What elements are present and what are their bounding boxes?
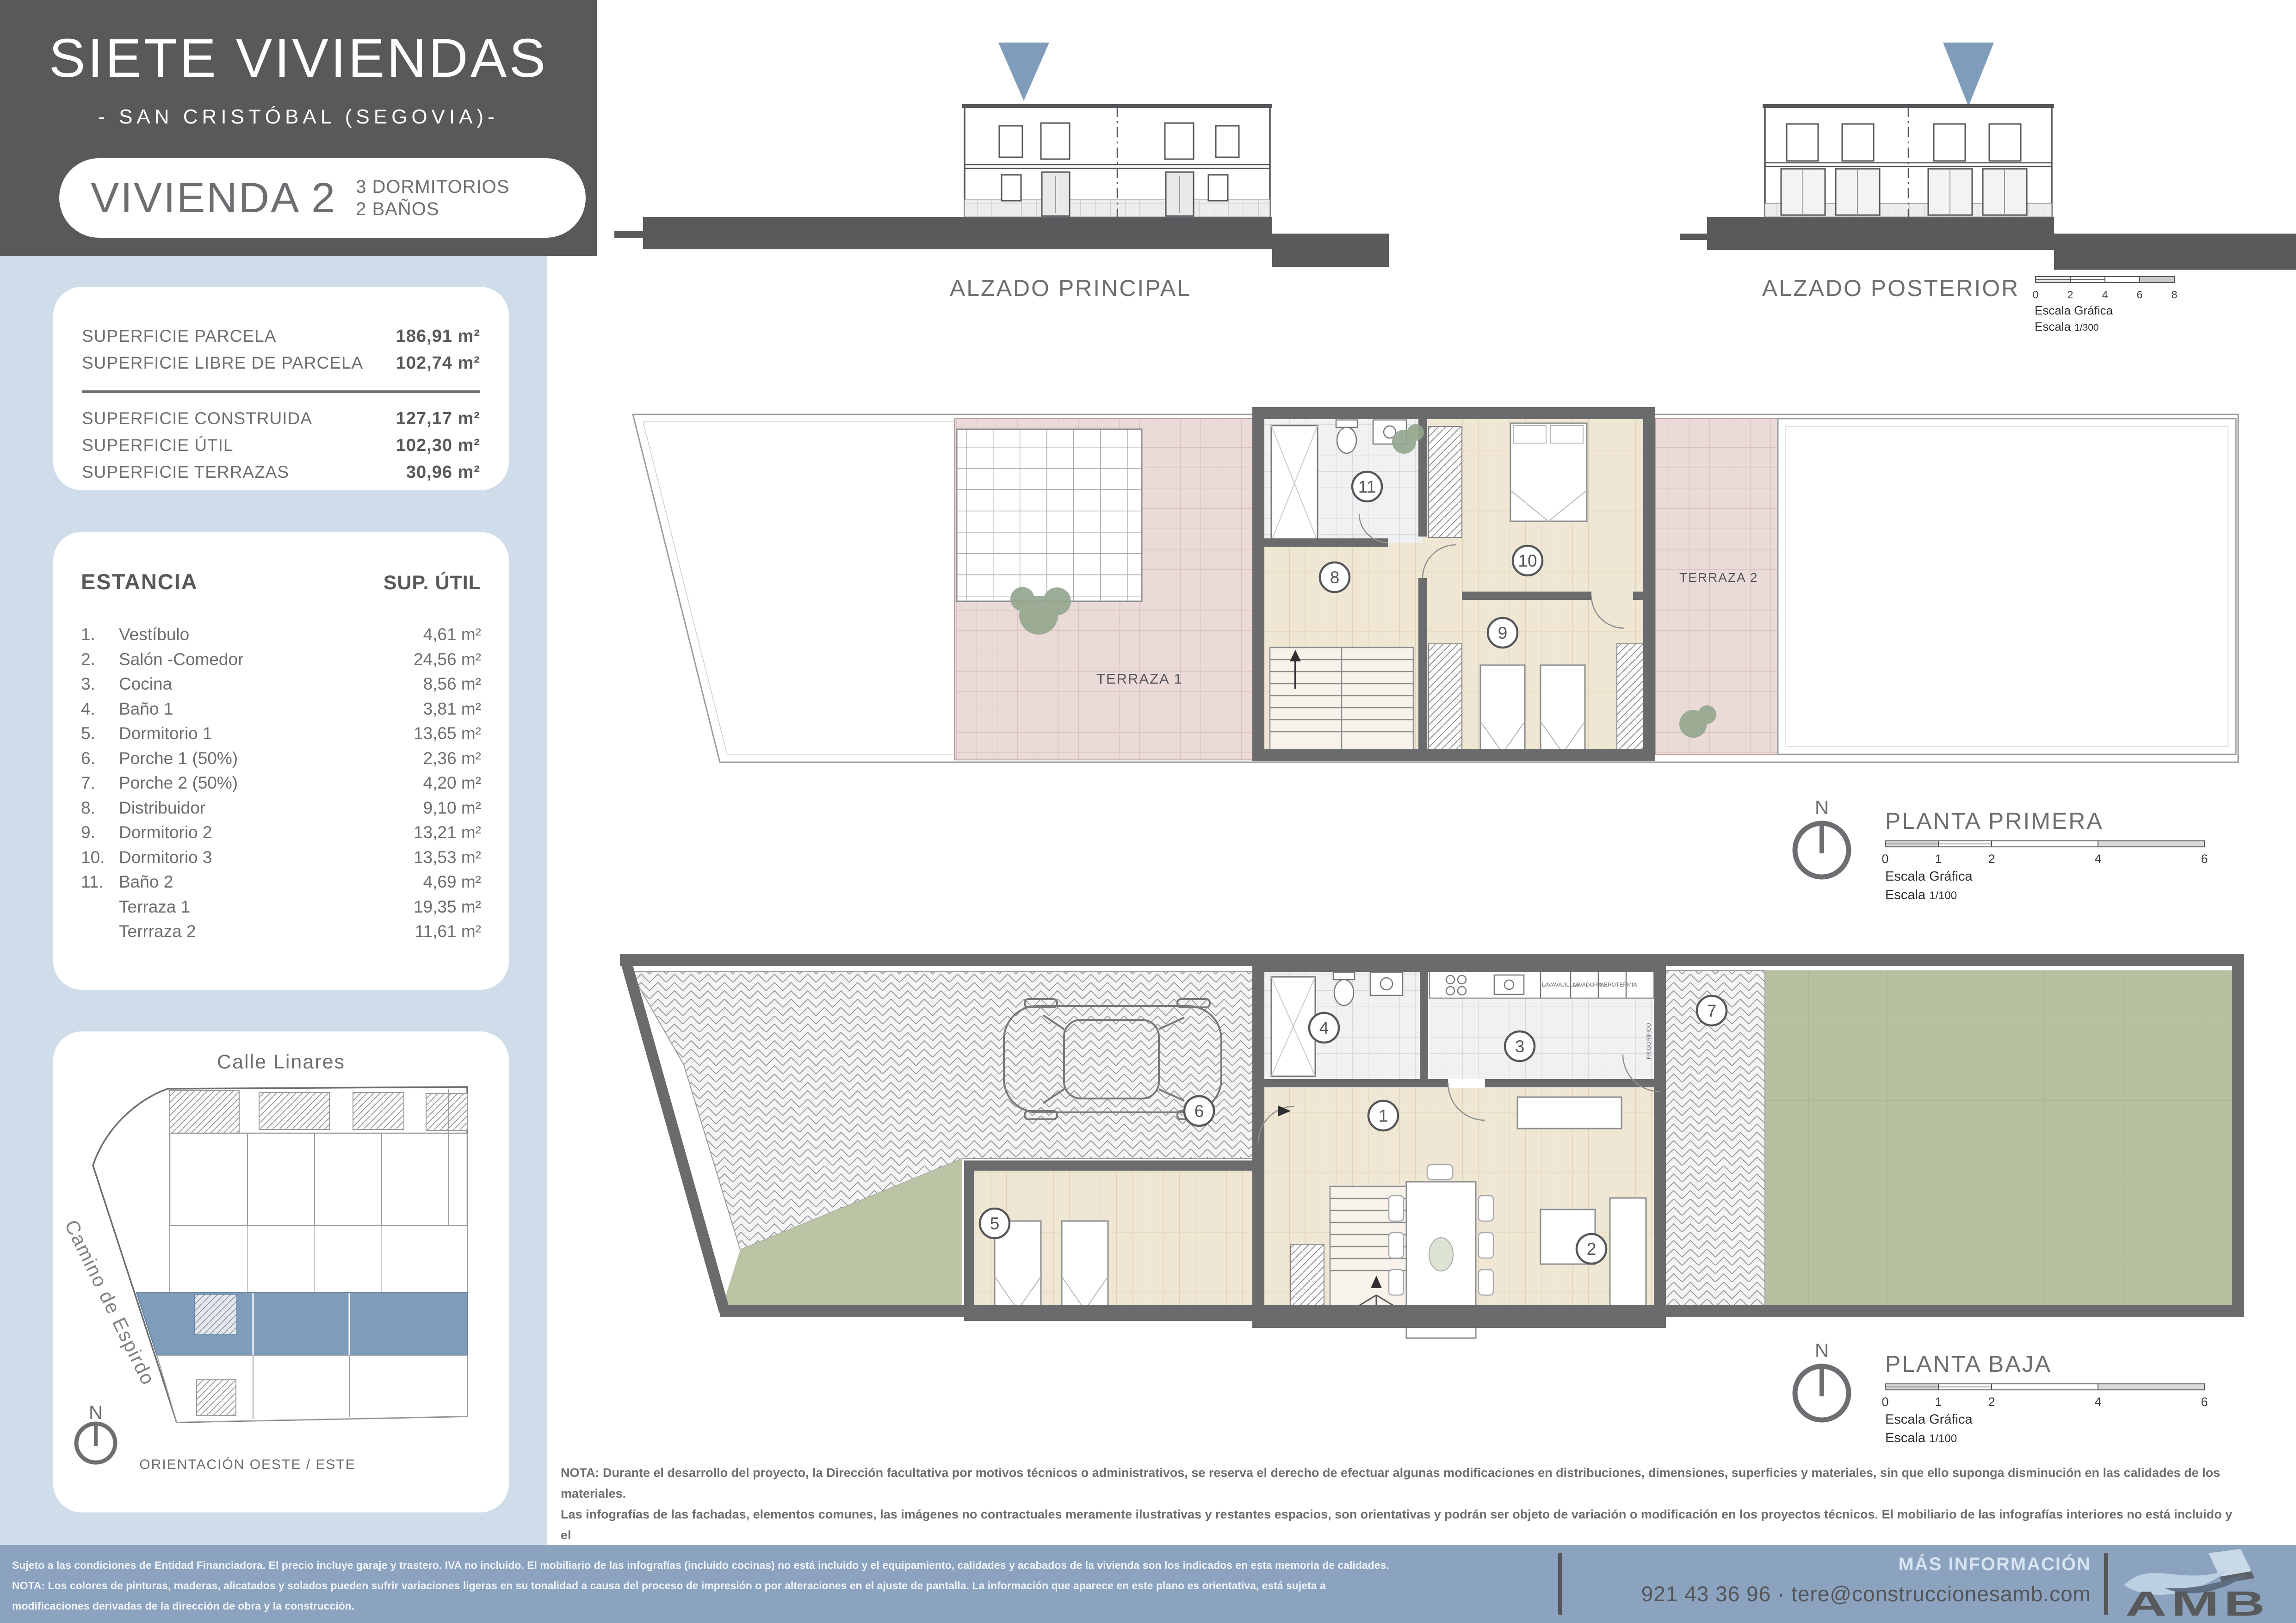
alzado-posterior-label: ALZADO POSTERIOR	[1762, 275, 2019, 301]
table-row: 4.Baño 13,81 m²	[81, 697, 481, 722]
svg-text:4: 4	[2102, 289, 2108, 301]
svg-text:1: 1	[1935, 1395, 1942, 1409]
planta-primera-caption: N PLANTA PRIMERA 0 1 2 4 6 Escala Gráfic…	[1795, 796, 2208, 902]
room-marker: 7	[1697, 996, 1727, 1025]
plan-sheet: SIETE VIVIENDAS - SAN CRISTÓBAL (SEGOVIA…	[0, 0, 2296, 1623]
nota-line: NOTA: Durante el desarrollo del proyecto…	[561, 1463, 2245, 1504]
svg-text:9: 9	[1498, 623, 1508, 642]
svg-text:8: 8	[2172, 289, 2178, 301]
svg-text:4: 4	[2094, 1395, 2101, 1409]
svg-text:0: 0	[1881, 852, 1888, 866]
svg-text:3: 3	[1515, 1037, 1525, 1056]
unit-feature-bedrooms: 3 DORMITORIOS	[356, 176, 509, 198]
planta-baja-drawing: LAVAVAJILLAS LAVADORA AEROTERMIA FRIGORÍ…	[620, 954, 2244, 1338]
surface-label: SUPERFICIE ÚTIL	[82, 432, 234, 458]
table-row: 3.Cocina8,56 m²	[81, 672, 481, 697]
north-label: N	[1815, 796, 1829, 818]
unit-badge: VIVIENDA 2 3 DORMITORIOS 2 BAÑOS	[59, 158, 586, 238]
room-marker: 6	[1184, 1096, 1214, 1126]
surface-row: SUPERFICIE TERRAZAS 30,96 m²	[82, 459, 480, 486]
surface-card: SUPERFICIE PARCELA 186,91 m² SUPERFICIE …	[53, 287, 509, 490]
appliance-label: AEROTERMIA	[1600, 981, 1637, 988]
surface-value: 186,91 m²	[396, 323, 480, 350]
unit-feature-baths: 2 BAÑOS	[356, 198, 509, 220]
terraza1-label: TERRAZA 1	[1096, 671, 1183, 687]
fridge-label: FRIGORÍFICO	[1645, 1023, 1652, 1059]
scale-value: Escala1/100	[1885, 888, 1957, 902]
scale-title: Escala Gráfica	[1885, 869, 1973, 884]
svg-text:6: 6	[2201, 852, 2208, 866]
north-label: N	[1815, 1339, 1829, 1361]
alzado-principal-label: ALZADO PRINCIPAL	[950, 275, 1191, 301]
table-row: 1.Vestíbulo4,61 m²	[81, 622, 481, 647]
svg-text:1: 1	[1379, 1106, 1388, 1125]
room-marker: 8	[1320, 562, 1349, 592]
surface-value: 102,74 m²	[396, 350, 480, 376]
scale-title: Escala Gráfica	[1885, 1412, 1973, 1427]
drawings: ALZADO PRINCIPAL ALZADO POSTERI	[547, 0, 2296, 1547]
surface-row: SUPERFICIE PARCELA 186,91 m²	[82, 323, 480, 350]
north-label: N	[89, 1401, 103, 1423]
project-title: SIETE VIVIENDAS	[0, 27, 597, 90]
alzado-posterior-drawing: ALZADO POSTERIOR	[1680, 43, 2296, 301]
surface-label: SUPERFICIE TERRAZAS	[82, 459, 289, 485]
svg-text:7: 7	[1707, 1001, 1717, 1020]
siteplan-drawing: N	[53, 1031, 509, 1512]
alzado-principal-drawing: ALZADO PRINCIPAL	[614, 43, 1389, 301]
room-marker: 5	[980, 1209, 1009, 1238]
sidebar: SUPERFICIE PARCELA 186,91 m² SUPERFICIE …	[0, 256, 547, 1545]
col-room-header: ESTANCIA	[81, 569, 198, 594]
planta-primera-drawing: 11 8 10 9 TERRAZA 1 TERRAZA 2	[633, 413, 2238, 762]
svg-text:2: 2	[2067, 289, 2073, 301]
svg-text:6: 6	[2201, 1395, 2208, 1409]
more-info-label: MÁS INFORMACIÓN	[1582, 1554, 2091, 1575]
svg-text:6: 6	[2137, 289, 2143, 301]
col-area-header: SUP. ÚTIL	[384, 572, 481, 594]
room-marker: 11	[1352, 472, 1382, 501]
svg-text:10: 10	[1518, 551, 1537, 570]
disclaimer-line: Sujeto a las condiciones de Entidad Fina…	[12, 1555, 1548, 1575]
svg-text:0: 0	[1881, 1395, 1888, 1409]
room-marker: 10	[1513, 546, 1542, 575]
svg-text:0: 0	[2033, 289, 2039, 301]
surface-row: SUPERFICIE ÚTIL 102,30 m²	[82, 432, 480, 459]
room-marker: 2	[1577, 1234, 1606, 1264]
surface-label: SUPERFICIE PARCELA	[82, 323, 276, 349]
surface-row: SUPERFICIE LIBRE DE PARCELA 102,74 m²	[82, 350, 480, 376]
planta-baja-label: PLANTA BAJA	[1885, 1351, 2052, 1377]
amb-logo-text: AMB	[2125, 1584, 2270, 1619]
room-marker: 4	[1309, 1013, 1339, 1043]
table-row: 9.Dormitorio 213,21 m²	[81, 820, 481, 845]
table-row: 5.Dormitorio 113,65 m²	[81, 721, 481, 746]
project-location: - SAN CRISTÓBAL (SEGOVIA)-	[0, 105, 597, 129]
table-row: 6.Porche 1 (50%)2,36 m²	[81, 746, 481, 771]
svg-text:2: 2	[1988, 852, 1995, 866]
surface-value: 127,17 m²	[396, 406, 480, 432]
svg-text:8: 8	[1330, 568, 1340, 587]
scale-value: Escala1/100	[1885, 1431, 1957, 1445]
svg-text:4: 4	[1319, 1018, 1329, 1037]
disclaimer-line: modificaciones derivadas de la dirección…	[12, 1596, 1548, 1616]
room-table-card: ESTANCIA SUP. ÚTIL 1.Vestíbulo4,61 m² 2.…	[53, 532, 509, 990]
section-marker-icon	[998, 43, 1049, 101]
svg-text:2: 2	[1988, 1395, 1995, 1409]
alzados-scale: 0 2 4 6 8 Escala Gráfica Escala1/300	[2033, 277, 2178, 333]
table-row: 11.Baño 24,69 m²	[81, 870, 481, 895]
contact-line: 921 43 36 96 · tere@construccionesamb.co…	[1582, 1581, 2091, 1606]
svg-text:4: 4	[2094, 852, 2101, 866]
surface-value: 102,30 m²	[396, 432, 480, 459]
surface-label: SUPERFICIE CONSTRUIDA	[82, 405, 312, 432]
table-row: Terrraza 211,61 m²	[81, 919, 481, 944]
unit-name: VIVIENDA 2	[91, 174, 336, 222]
svg-text:6: 6	[1194, 1102, 1204, 1121]
room-marker: 1	[1368, 1101, 1398, 1130]
surface-row: SUPERFICIE CONSTRUIDA 127,17 m²	[82, 405, 480, 432]
table-row: Terraza 119,35 m²	[81, 895, 481, 919]
room-marker: 3	[1505, 1031, 1535, 1061]
surface-value: 30,96 m²	[406, 459, 480, 486]
footer-disclaimer: Sujeto a las condiciones de Entidad Fina…	[12, 1555, 1548, 1616]
table-row: 2.Salón -Comedor24,56 m²	[81, 647, 481, 672]
street-top-label: Calle Linares	[53, 1051, 509, 1074]
unit-features: 3 DORMITORIOS 2 BAÑOS	[356, 176, 509, 220]
svg-text:1: 1	[1935, 852, 1942, 866]
orientation-label: ORIENTACIÓN OESTE / ESTE	[127, 1457, 368, 1473]
table-row: 8.Distribuidor9,10 m²	[81, 796, 481, 821]
svg-text:11: 11	[1358, 477, 1376, 496]
table-row: 10.Dormitorio 313,53 m²	[81, 845, 481, 870]
room-table-header: ESTANCIA SUP. ÚTIL	[81, 569, 481, 594]
planta-primera-label: PLANTA PRIMERA	[1885, 808, 2104, 834]
section-marker-icon	[1943, 43, 1994, 106]
divider	[82, 390, 480, 393]
siteplan-card: Calle Linares	[53, 1031, 509, 1512]
terraza2-label: TERRAZA 2	[1679, 570, 1758, 585]
header: SIETE VIVIENDAS - SAN CRISTÓBAL (SEGOVIA…	[0, 0, 597, 256]
nota-line: Las infografías de las fachadas, element…	[561, 1504, 2245, 1546]
siteplan-compass: N	[76, 1401, 115, 1463]
planta-baja-caption: N PLANTA BAJA 0 1 2 4 6 Escala Gráfica E…	[1795, 1339, 2208, 1445]
svg-text:2: 2	[1587, 1240, 1597, 1259]
appliance-label: LAVADORA	[1572, 981, 1602, 988]
divider	[2104, 1553, 2108, 1615]
room-marker: 9	[1488, 618, 1517, 648]
scale-title: Escala Gráfica	[2035, 303, 2113, 317]
amb-logo: AMB	[2123, 1549, 2275, 1619]
divider	[1558, 1553, 1562, 1615]
table-row: 7.Porche 2 (50%)4,20 m²	[81, 771, 481, 796]
footer-contact-block: MÁS INFORMACIÓN 921 43 36 96 · tere@cons…	[1582, 1554, 2091, 1606]
svg-text:5: 5	[990, 1214, 1000, 1233]
scale-value: Escala1/300	[2035, 320, 2099, 333]
footer: Sujeto a las condiciones de Entidad Fina…	[0, 1545, 2296, 1623]
disclaimer-line: NOTA: Los colores de pinturas, maderas, …	[12, 1575, 1548, 1596]
surface-label: SUPERFICIE LIBRE DE PARCELA	[82, 350, 363, 376]
